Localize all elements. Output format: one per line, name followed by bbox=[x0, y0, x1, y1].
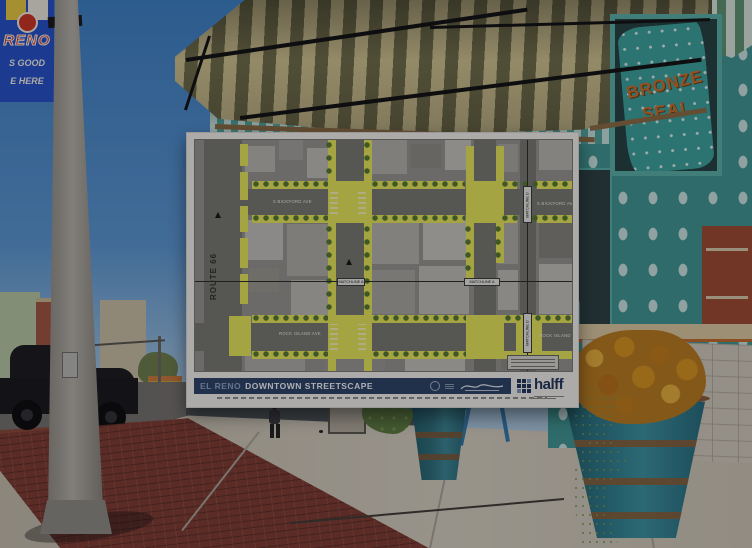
poster-title: DOWNTOWN STREETSCAPE bbox=[245, 381, 373, 391]
halff-logo: halff bbox=[517, 376, 564, 399]
curb-highlight bbox=[240, 172, 248, 200]
matchline-a-label: MATCHLINE A bbox=[337, 278, 365, 286]
crosswalk bbox=[358, 324, 366, 350]
bickford-ave-label: S BICKFORD AVE bbox=[537, 201, 573, 206]
intersection-highlight bbox=[466, 315, 504, 359]
intersection-highlight bbox=[466, 181, 504, 223]
matchline-a-line bbox=[195, 281, 573, 282]
halff-name: halff bbox=[534, 376, 563, 393]
street-trees bbox=[371, 214, 465, 223]
rock-island-ave-label: ROCK ISLAND AVE bbox=[539, 333, 573, 338]
halff-grid-icon bbox=[517, 379, 531, 393]
rock-island-ave-label: ROCK ISLAND AVE bbox=[279, 331, 321, 336]
banner-line3: E HERE bbox=[0, 76, 54, 86]
map-legend-box bbox=[507, 355, 559, 370]
street-banner: RENO S GOOD E HERE bbox=[0, 0, 54, 102]
poster-title-bar: EL RENO DOWNTOWN STREETSCAPE bbox=[194, 378, 511, 394]
curb-highlight bbox=[496, 146, 504, 181]
street-trees bbox=[325, 140, 335, 180]
matchline-d-label: MATCHLINE D bbox=[523, 313, 532, 353]
planter-band bbox=[408, 432, 470, 438]
curb-highlight bbox=[240, 144, 248, 166]
curb-highlight bbox=[240, 206, 248, 232]
crosswalk bbox=[330, 324, 338, 350]
north-arrow-icon bbox=[346, 259, 352, 265]
street-trees bbox=[252, 350, 328, 359]
street-trees bbox=[325, 224, 335, 314]
banner-title: RENO bbox=[0, 32, 54, 49]
banner-red-dot bbox=[17, 12, 38, 33]
bird bbox=[319, 430, 323, 433]
aerial-map: MATCHLINE A MATCHLINE A MATCHLINE D MATC… bbox=[194, 139, 573, 372]
street-trees bbox=[494, 224, 504, 264]
curb-highlight bbox=[240, 274, 248, 304]
street-trees bbox=[252, 180, 328, 189]
street-photo-scene: BRONZE SEAL RE bbox=[0, 0, 752, 548]
curb-highlight bbox=[466, 146, 474, 181]
corner-bulb bbox=[229, 316, 251, 356]
street-trees bbox=[371, 180, 465, 189]
street-trees bbox=[464, 224, 474, 282]
street-trees bbox=[501, 214, 573, 223]
bickford-ave-street bbox=[204, 189, 573, 215]
truck-hub bbox=[21, 409, 33, 421]
window-sign-line1: BRONZE bbox=[625, 67, 705, 104]
poster-city: EL RENO bbox=[200, 381, 241, 391]
curb-highlight bbox=[328, 359, 336, 372]
truck-hub bbox=[105, 411, 117, 423]
street-trees bbox=[372, 314, 466, 323]
pedestrian bbox=[265, 405, 285, 439]
crosswalk bbox=[358, 190, 366, 214]
post-plaque bbox=[62, 352, 78, 378]
crosswalk bbox=[330, 190, 338, 214]
city-seal-icon bbox=[430, 381, 440, 391]
lamp-post-base bbox=[40, 500, 112, 534]
street-trees bbox=[363, 140, 373, 180]
curb-highlight bbox=[364, 359, 372, 372]
route-66-label: ROUTE 66 bbox=[209, 236, 221, 306]
street-trees bbox=[372, 350, 466, 359]
shop-window: BRONZE SEAL bbox=[610, 14, 722, 176]
matchline-d-label: MATCHLINE D bbox=[523, 186, 532, 223]
seal-text-lines bbox=[445, 383, 454, 390]
north-arrow-icon bbox=[215, 212, 221, 218]
street-trees bbox=[252, 214, 328, 223]
street-trees bbox=[504, 314, 573, 323]
curb-highlight bbox=[240, 238, 248, 268]
window-sign: BRONZE SEAL bbox=[617, 22, 715, 175]
concrete-lamp-post bbox=[46, 0, 106, 532]
fine-print-line bbox=[217, 397, 547, 399]
banner-line2: S GOOD bbox=[0, 58, 54, 68]
streetscape-poster-board: MATCHLINE A MATCHLINE A MATCHLINE D MATC… bbox=[186, 132, 579, 408]
street-trees bbox=[363, 224, 373, 314]
matchline-a-label: MATCHLINE A bbox=[464, 278, 500, 286]
signature-logo bbox=[459, 380, 505, 392]
street-trees bbox=[501, 180, 573, 189]
street-trees bbox=[252, 314, 328, 323]
brick-mural-patch bbox=[702, 226, 752, 334]
bickford-ave-label: S BICKFORD AVE bbox=[273, 199, 312, 204]
